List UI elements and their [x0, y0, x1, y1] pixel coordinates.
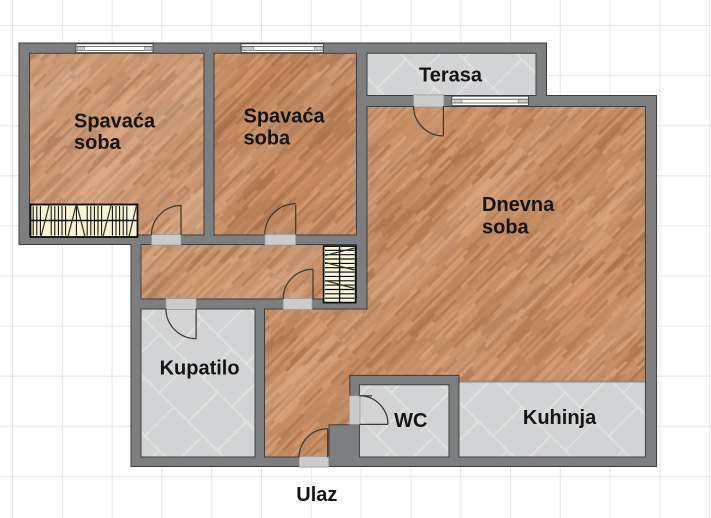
svg-text:Terasa: Terasa [419, 65, 483, 87]
svg-text:soba: soba [244, 128, 292, 150]
svg-text:soba: soba [74, 132, 122, 154]
svg-text:Ulaz: Ulaz [296, 484, 337, 506]
svg-text:Kuhinja: Kuhinja [523, 407, 597, 429]
svg-text:soba: soba [482, 217, 530, 239]
svg-text:Dnevna: Dnevna [482, 194, 555, 216]
svg-text:Spavaća: Spavaća [74, 110, 156, 132]
svg-text:WC: WC [394, 410, 427, 432]
svg-text:Kupatilo: Kupatilo [160, 358, 240, 380]
svg-text:Spavaća: Spavaća [244, 106, 326, 128]
